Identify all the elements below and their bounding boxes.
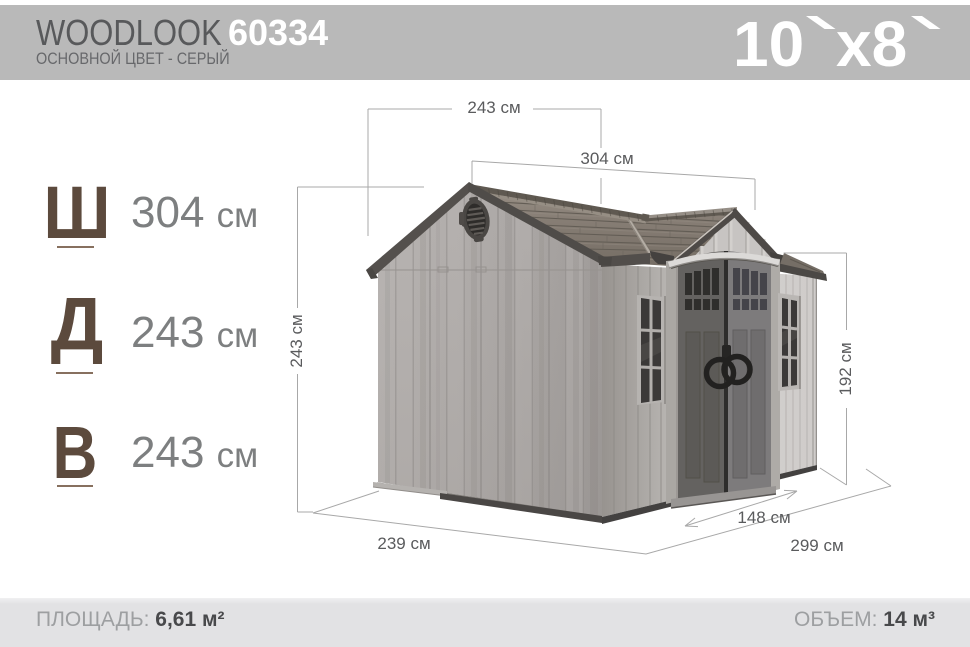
svg-text:239 см: 239 см	[377, 534, 430, 553]
svg-text:299 см: 299 см	[790, 536, 843, 555]
svg-text:304 см: 304 см	[580, 149, 633, 168]
svg-text:243 см: 243 см	[467, 98, 520, 117]
svg-text:192 см: 192 см	[836, 342, 855, 395]
svg-text:243 см: 243 см	[287, 314, 306, 367]
svg-text:148 см: 148 см	[737, 508, 790, 527]
